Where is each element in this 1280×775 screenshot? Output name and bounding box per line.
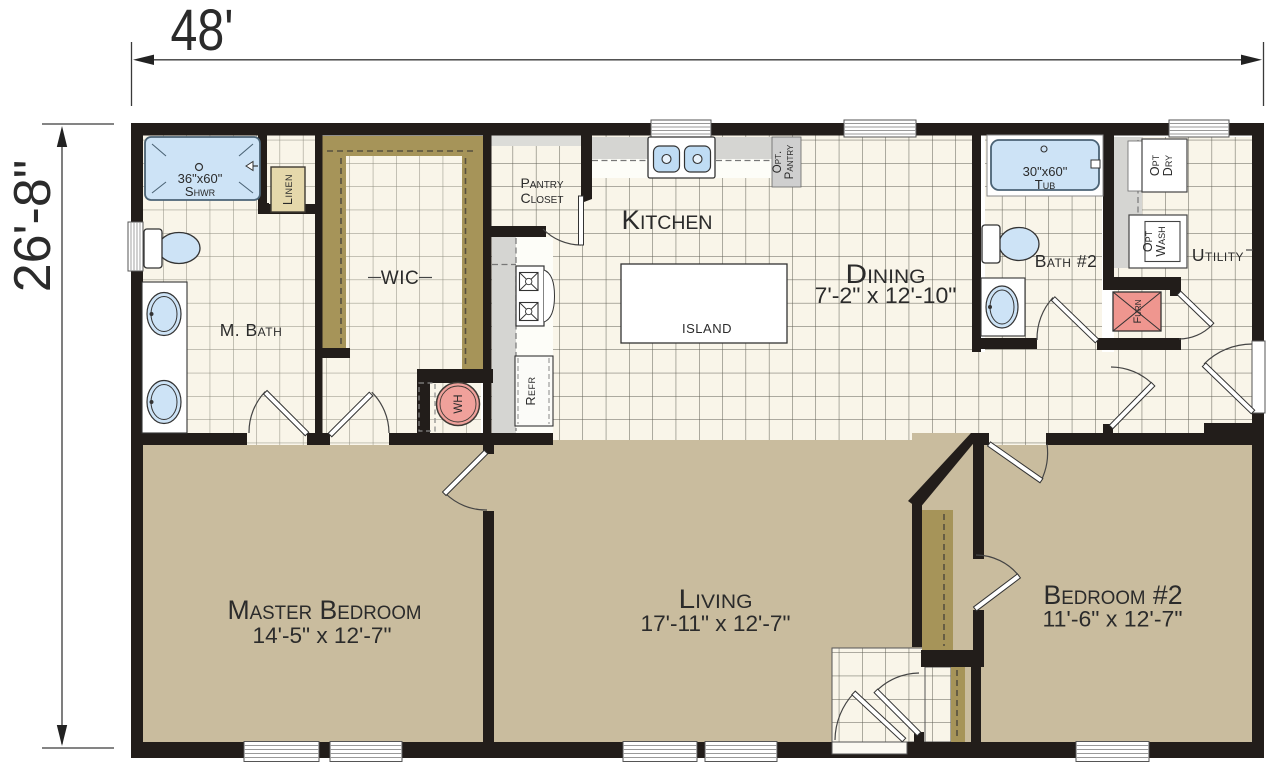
svg-text:ISLAND: ISLAND	[682, 321, 732, 336]
svg-text:Bath #2: Bath #2	[1035, 251, 1098, 271]
svg-text:M. Bath: M. Bath	[220, 320, 283, 340]
svg-text:Linen: Linen	[281, 174, 295, 205]
svg-text:Opt.: Opt.	[772, 151, 784, 173]
svg-text:11'-6" x 12'-7": 11'-6" x 12'-7"	[1043, 607, 1183, 632]
svg-text:Master Bedroom: Master Bedroom	[228, 595, 422, 625]
svg-text:Pantry: Pantry	[520, 175, 563, 191]
svg-text:26'-8": 26'-8"	[4, 160, 62, 292]
svg-text:Furn: Furn	[1132, 299, 1144, 323]
svg-text:Wash: Wash	[1154, 226, 1168, 256]
svg-text:WH: WH	[453, 394, 465, 413]
svg-text:Tub: Tub	[1035, 177, 1055, 192]
svg-text:Bedroom #2: Bedroom #2	[1044, 580, 1183, 610]
svg-text:Kitchen: Kitchen	[622, 205, 713, 235]
svg-text:Living: Living	[679, 584, 753, 614]
svg-text:Refr: Refr	[524, 376, 538, 405]
svg-text:7'-2" x 12'-10": 7'-2" x 12'-10"	[815, 283, 957, 308]
svg-text:WIC: WIC	[381, 268, 419, 289]
svg-text:48': 48'	[171, 0, 234, 63]
svg-text:Opt: Opt	[1148, 154, 1162, 176]
svg-text:Shwr: Shwr	[185, 184, 216, 199]
svg-text:Utility: Utility	[1192, 245, 1244, 265]
svg-text:Dry: Dry	[1161, 155, 1175, 176]
svg-text:Closet: Closet	[521, 190, 564, 206]
svg-text:Opt: Opt	[1141, 230, 1155, 252]
svg-text:Pantry: Pantry	[784, 144, 796, 179]
svg-text:17'-11" x 12'-7": 17'-11" x 12'-7"	[641, 611, 791, 636]
svg-text:14'-5" x 12'-7": 14'-5" x 12'-7"	[253, 623, 392, 648]
